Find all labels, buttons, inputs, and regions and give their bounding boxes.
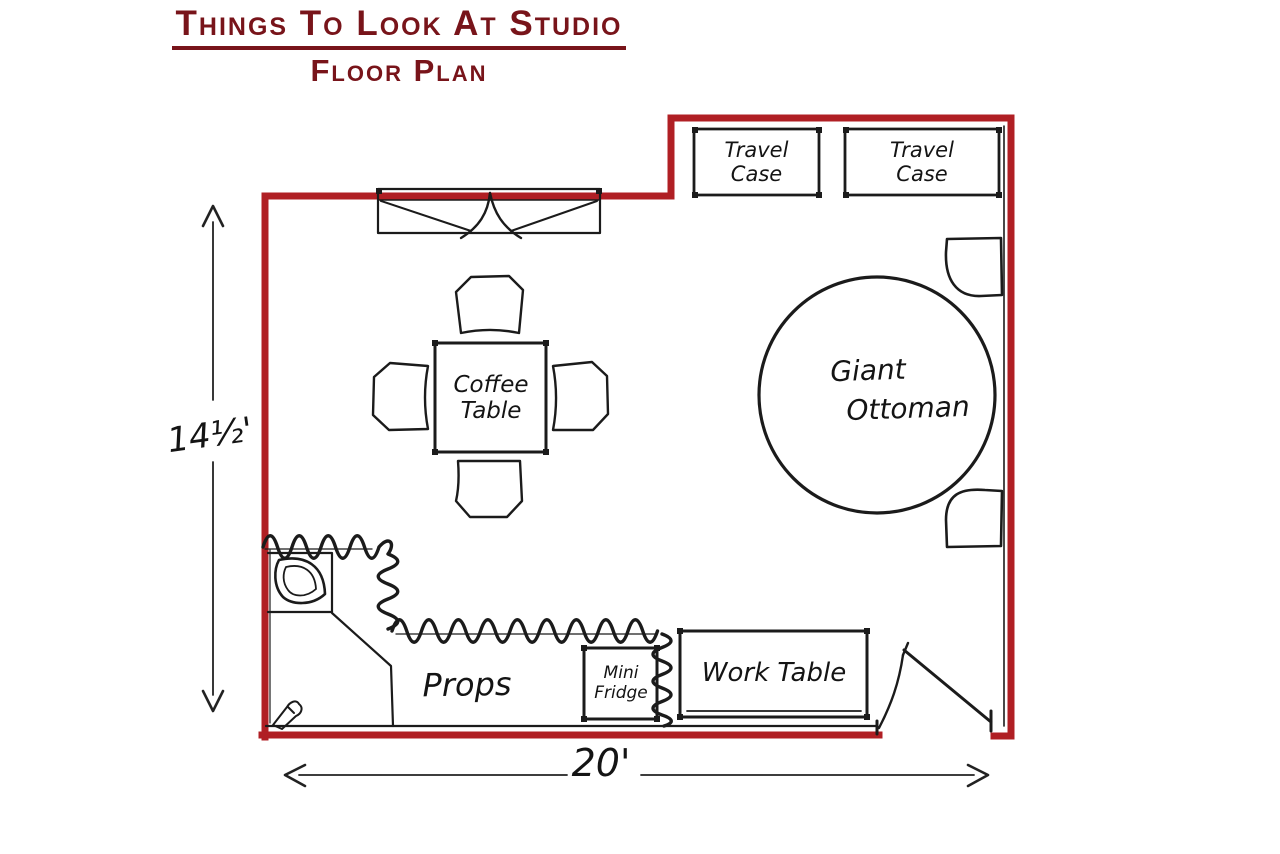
work-table-label: Work Table [681,631,867,717]
travel-case-2-line1: Travel [890,138,954,162]
travel-case-2-line2: Case [896,162,947,186]
page-title: Things To Look At Studio [172,5,627,50]
travel-case-2-label: Travel Case [845,129,999,195]
width-dimension-arrow [285,765,988,786]
props-label: Props [422,666,512,704]
coffee-table-label: Coffee Table [436,344,546,452]
coffee-table-line1: Coffee [453,372,528,398]
page-subtitle: Floor Plan [140,52,658,89]
mini-fridge-label: Mini Fridge [584,649,658,718]
small-prop-bottle [273,701,302,729]
width-dimension-value: 20' [572,742,631,786]
chair-bottom-right [946,490,1002,547]
mini-fridge-line1: Mini [604,664,639,684]
travel-case-1-label: Travel Case [694,129,819,195]
travel-case-1-line2: Case [731,162,782,186]
floor-plan-page: Things To Look At Studio Floor Plan Trav… [0,0,1280,854]
room-walls [262,118,1011,737]
coffee-table-line2: Table [461,398,522,424]
travel-case-1-line1: Travel [725,138,789,162]
wall-ink-edges [266,126,1004,726]
corner-sink [268,553,393,726]
height-dimension-arrow [203,206,223,711]
mini-fridge-line2: Fridge [594,684,648,704]
giant-ottoman-label-line1: Giant [830,354,906,389]
chair-top-right [946,238,1002,296]
giant-ottoman-label-line2: Ottoman [846,391,970,427]
entry-door [877,643,991,734]
plan-header: Things To Look At Studio Floor Plan [140,5,658,89]
